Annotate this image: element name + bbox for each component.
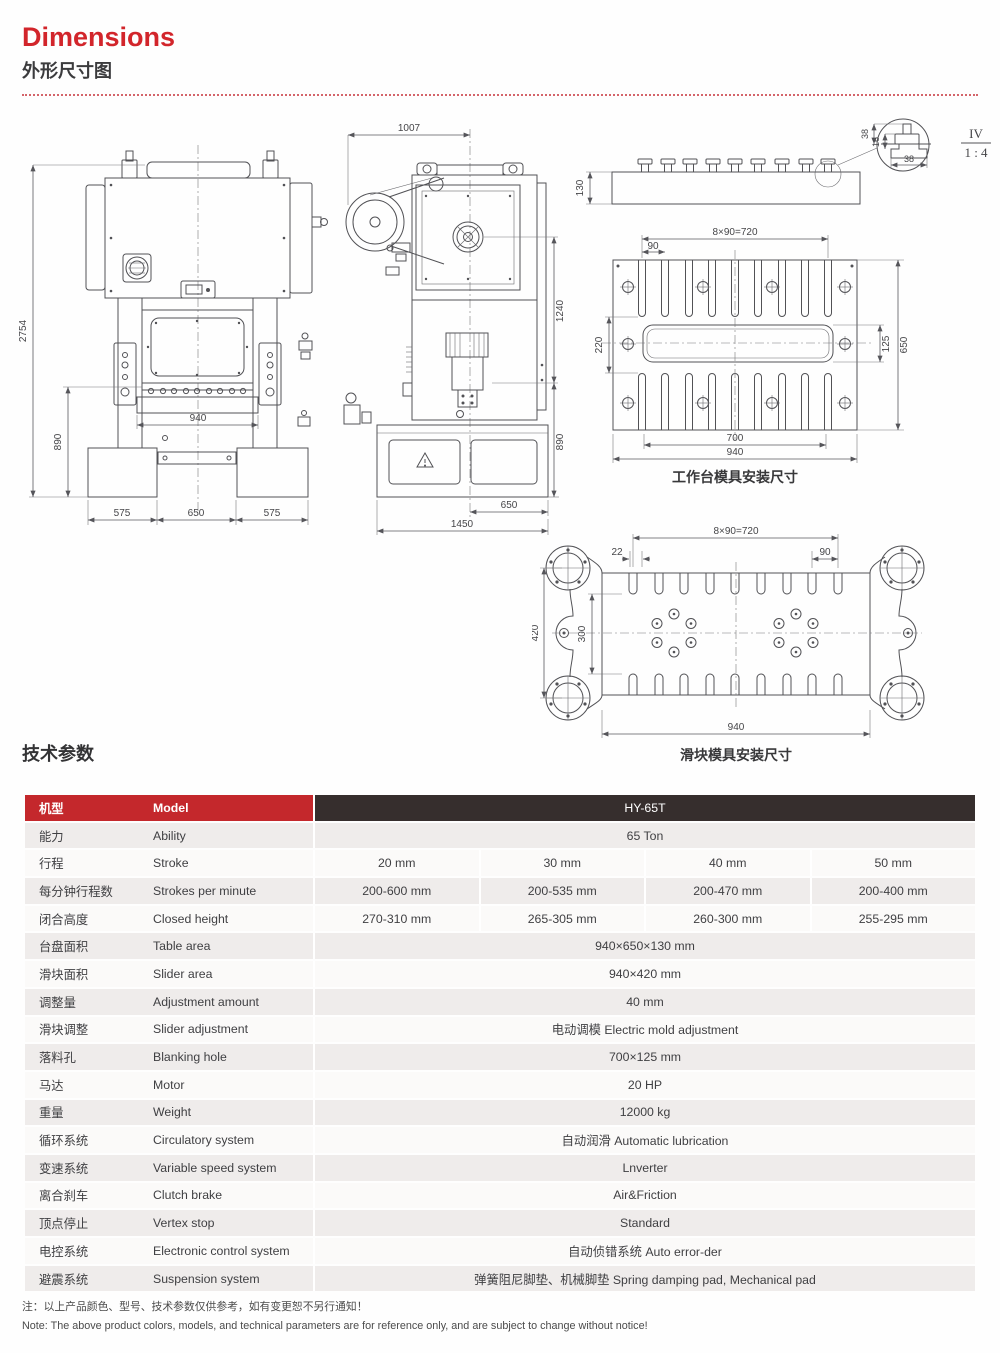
- spec-value: 20 mm: [315, 850, 479, 876]
- spec-label-en: Stroke: [153, 856, 313, 870]
- spec-value: 940×420 mm: [315, 961, 975, 987]
- spec-label-en: Variable speed system: [153, 1161, 313, 1175]
- dim-front-foot-left: 575: [114, 508, 131, 519]
- spec-value: 700×125 mm: [315, 1044, 975, 1070]
- dim-side-foot: 650: [501, 500, 518, 511]
- dim-front-table-width: 940: [190, 413, 207, 424]
- table-row: 变速系统Variable speed system Lnverter: [25, 1155, 975, 1181]
- dim-slider-height: 420: [532, 624, 541, 641]
- spec-label-en: Slider area: [153, 967, 313, 981]
- dim-worktable-220: 220: [594, 336, 605, 353]
- spec-value: 40 mm: [646, 850, 810, 876]
- dim-worktable-depth: 650: [899, 336, 910, 353]
- page-title: Dimensions: [22, 22, 175, 52]
- table-row: 能力Ability 65 Ton: [25, 823, 975, 849]
- dim-worktable-slot-height: 125: [881, 335, 892, 352]
- spec-label-en: Clutch brake: [153, 1188, 313, 1202]
- spec-value: 200-400 mm: [812, 878, 976, 904]
- spec-label-cn: 滑块面积: [25, 965, 153, 983]
- spec-label-en: Motor: [153, 1078, 313, 1092]
- dim-slider-offset: 22: [611, 547, 623, 558]
- spec-value: 270-310 mm: [315, 906, 479, 932]
- spec-label-cn: 避震系统: [25, 1270, 153, 1288]
- slider-flange-tr: [880, 546, 924, 590]
- dim-side-mid: 1240: [555, 299, 566, 322]
- spec-value: 40 mm: [315, 989, 975, 1015]
- table-row: 顶点停止Vertex stop Standard: [25, 1210, 975, 1236]
- spec-label-cn: 闭合高度: [25, 910, 153, 928]
- footer-notes: 注：以上产品颜色、型号、技术参数仅供参考，如有变更恕不另行通知！ Note: T…: [22, 1298, 648, 1336]
- worktable-top-drawing: 8×90=720 90 220 125 650 700 940 工作台模具安装尺…: [580, 222, 990, 492]
- dim-worktable-width: 940: [727, 447, 744, 458]
- table-header-row: 机型 Model HY-65T: [25, 795, 975, 821]
- specs-section-title: 技术参数: [22, 740, 94, 766]
- spec-label-cn: 调整量: [25, 993, 153, 1011]
- worktable-caption: 工作台模具安装尺寸: [672, 469, 798, 485]
- table-row: 闭合高度Closed height 270-310 mm 265-305 mm …: [25, 906, 975, 932]
- specs-table: 机型 Model HY-65T 能力Ability 65 Ton 行程Strok…: [25, 795, 975, 1291]
- dim-profile-thickness: 130: [575, 179, 586, 196]
- side-machine-body: [344, 129, 548, 520]
- table-row: 离合刹车Clutch brake Air&Friction: [25, 1183, 975, 1209]
- table-row: 行程Stroke 20 mm 30 mm 40 mm 50 mm: [25, 850, 975, 876]
- dim-side-base-height: 890: [555, 433, 566, 450]
- spec-value: Air&Friction: [315, 1183, 975, 1209]
- dim-side-total: 1450: [451, 519, 474, 530]
- dim-front-center: 650: [188, 508, 205, 519]
- dim-detail-16: 16: [871, 137, 881, 147]
- table-row: 电控系统Electronic control system 自动侦错系统 Aut…: [25, 1238, 975, 1264]
- spec-label-en: Adjustment amount: [153, 995, 313, 1009]
- spec-value: 265-305 mm: [481, 906, 645, 932]
- page-subtitle: 外形尺寸图: [22, 57, 175, 83]
- detail-scale-ratio: 1 : 4: [964, 145, 988, 160]
- worktable-dimensions: 8×90=720 90 220 125 650 700 940 工作台模具安装尺…: [594, 227, 910, 485]
- front-machine-body: [86, 145, 328, 515]
- dim-worktable-pitch: 90: [647, 241, 659, 252]
- worktable-body: [602, 250, 872, 440]
- spec-value: Lnverter: [315, 1155, 975, 1181]
- spec-value: 260-300 mm: [646, 906, 810, 932]
- worktable-bolt-holes: [620, 279, 853, 411]
- spec-value: Standard: [315, 1210, 975, 1236]
- spec-label-cn: 顶点停止: [25, 1214, 153, 1232]
- table-row: 重量Weight 12000 kg: [25, 1100, 975, 1126]
- spec-value: 65 Ton: [315, 823, 975, 849]
- spec-value: 自动润滑 Automatic lubrication: [315, 1127, 975, 1153]
- dim-slider-width: 940: [728, 722, 745, 733]
- note-cn: 注：以上产品颜色、型号、技术参数仅供参考，如有变更恕不另行通知！: [22, 1298, 648, 1317]
- slider-body: [546, 546, 924, 720]
- detail-scale-numeral: IV: [969, 126, 983, 141]
- dotted-divider: [22, 94, 978, 96]
- spec-value: 12000 kg: [315, 1100, 975, 1126]
- table-row: 滑块面积Slider area 940×420 mm: [25, 961, 975, 987]
- spec-value: 200-470 mm: [646, 878, 810, 904]
- spec-label-en: Closed height: [153, 912, 313, 926]
- spec-value: 30 mm: [481, 850, 645, 876]
- dim-slider-pitch: 90: [819, 547, 831, 558]
- spec-label-cn: 重量: [25, 1103, 153, 1121]
- table-row: 调整量Adjustment amount 40 mm: [25, 989, 975, 1015]
- slider-flange-br: [880, 676, 924, 720]
- slider-bottom-slots: [629, 674, 842, 695]
- table-row: 每分钟行程数Strokes per minute 200-600 mm 200-…: [25, 878, 975, 904]
- spec-label-en: Suspension system: [153, 1272, 313, 1286]
- spec-label-en: Ability: [153, 829, 313, 843]
- slider-view-drawing: 8×90=720 22 90 420 300 940 滑块模具安装尺寸: [532, 522, 992, 774]
- spec-label-en: Slider adjustment: [153, 1022, 313, 1036]
- front-dimensions: 2754 890 940 575 650 575: [18, 165, 308, 525]
- slider-top-slots: [629, 573, 842, 594]
- spec-label-cn: 落料孔: [25, 1048, 153, 1066]
- dim-detail-38a: 38: [860, 129, 870, 139]
- dim-slider-inner: 300: [577, 625, 588, 642]
- spec-value: 200-600 mm: [315, 878, 479, 904]
- spec-label-cn: 离合刹车: [25, 1186, 153, 1204]
- header-label-en: Model: [153, 801, 313, 815]
- t-bolts: [638, 159, 835, 172]
- spec-label-cn: 能力: [25, 827, 153, 845]
- spec-value: 200-535 mm: [481, 878, 645, 904]
- slider-caption: 滑块模具安装尺寸: [680, 747, 792, 763]
- dim-detail-38b: 38: [904, 154, 914, 164]
- spec-label-en: Circulatory system: [153, 1133, 313, 1147]
- model-value: HY-65T: [315, 795, 975, 821]
- spec-value: 50 mm: [812, 850, 976, 876]
- table-row: 落料孔Blanking hole 700×125 mm: [25, 1044, 975, 1070]
- spec-label-en: Electronic control system: [153, 1244, 313, 1258]
- spec-label-cn: 行程: [25, 854, 153, 872]
- page-header: Dimensions 外形尺寸图: [22, 22, 175, 83]
- spec-label-cn: 每分钟行程数: [25, 882, 153, 900]
- note-en: Note: The above product colors, models, …: [22, 1317, 648, 1336]
- spec-label-en: Blanking hole: [153, 1050, 313, 1064]
- spec-label-cn: 电控系统: [25, 1242, 153, 1260]
- dim-front-foot-right: 575: [264, 508, 281, 519]
- spec-label-en: Strokes per minute: [153, 884, 313, 898]
- spec-value: 20 HP: [315, 1072, 975, 1098]
- spec-value: 弹簧阻尼脚垫、机械脚垫 Spring damping pad, Mechanic…: [315, 1266, 975, 1292]
- header-labels: 机型 Model: [25, 795, 313, 821]
- table-row: 循环系统Circulatory system 自动润滑 Automatic lu…: [25, 1127, 975, 1153]
- side-view-drawing: 1007 1240 890 650 1450: [332, 115, 572, 545]
- spec-label-en: Weight: [153, 1105, 313, 1119]
- front-view-drawing: 2754 890 940 575 650 575: [15, 115, 335, 535]
- spec-label-cn: 变速系统: [25, 1159, 153, 1177]
- spec-label-en: Table area: [153, 939, 313, 953]
- spec-label-cn: 循环系统: [25, 1131, 153, 1149]
- dim-slider-slots: 8×90=720: [713, 526, 758, 537]
- dim-front-table-height: 890: [53, 433, 64, 450]
- spec-label-cn: 滑块调整: [25, 1020, 153, 1038]
- dim-side-top: 1007: [398, 123, 421, 134]
- table-row: 避震系统Suspension system 弹簧阻尼脚垫、机械脚垫 Spring…: [25, 1266, 975, 1292]
- spec-value: 255-295 mm: [812, 906, 976, 932]
- dim-front-total-height: 2754: [18, 319, 29, 342]
- dim-worktable-slots: 8×90=720: [712, 227, 757, 238]
- table-profile-body: [612, 119, 931, 204]
- spec-value: 电动调模 Electric mold adjustment: [315, 1017, 975, 1043]
- spec-label-en: Vertex stop: [153, 1216, 313, 1230]
- slider-dimensions: 8×90=720 22 90 420 300 940 滑块模具安装尺寸: [532, 526, 870, 763]
- table-row: 滑块调整Slider adjustment 电动调模 Electric mold…: [25, 1017, 975, 1043]
- spec-label-cn: 马达: [25, 1076, 153, 1094]
- spec-value: 940×650×130 mm: [315, 933, 975, 959]
- spec-sheet-page: Dimensions 外形尺寸图: [0, 0, 1000, 1353]
- table-row: 台盘面积Table area 940×650×130 mm: [25, 933, 975, 959]
- spec-label-cn: 台盘面积: [25, 937, 153, 955]
- spec-value: 自动侦错系统 Auto error-der: [315, 1238, 975, 1264]
- header-label-cn: 机型: [25, 799, 153, 817]
- table-row: 马达Motor 20 HP: [25, 1072, 975, 1098]
- dim-worktable-inner: 700: [727, 433, 744, 444]
